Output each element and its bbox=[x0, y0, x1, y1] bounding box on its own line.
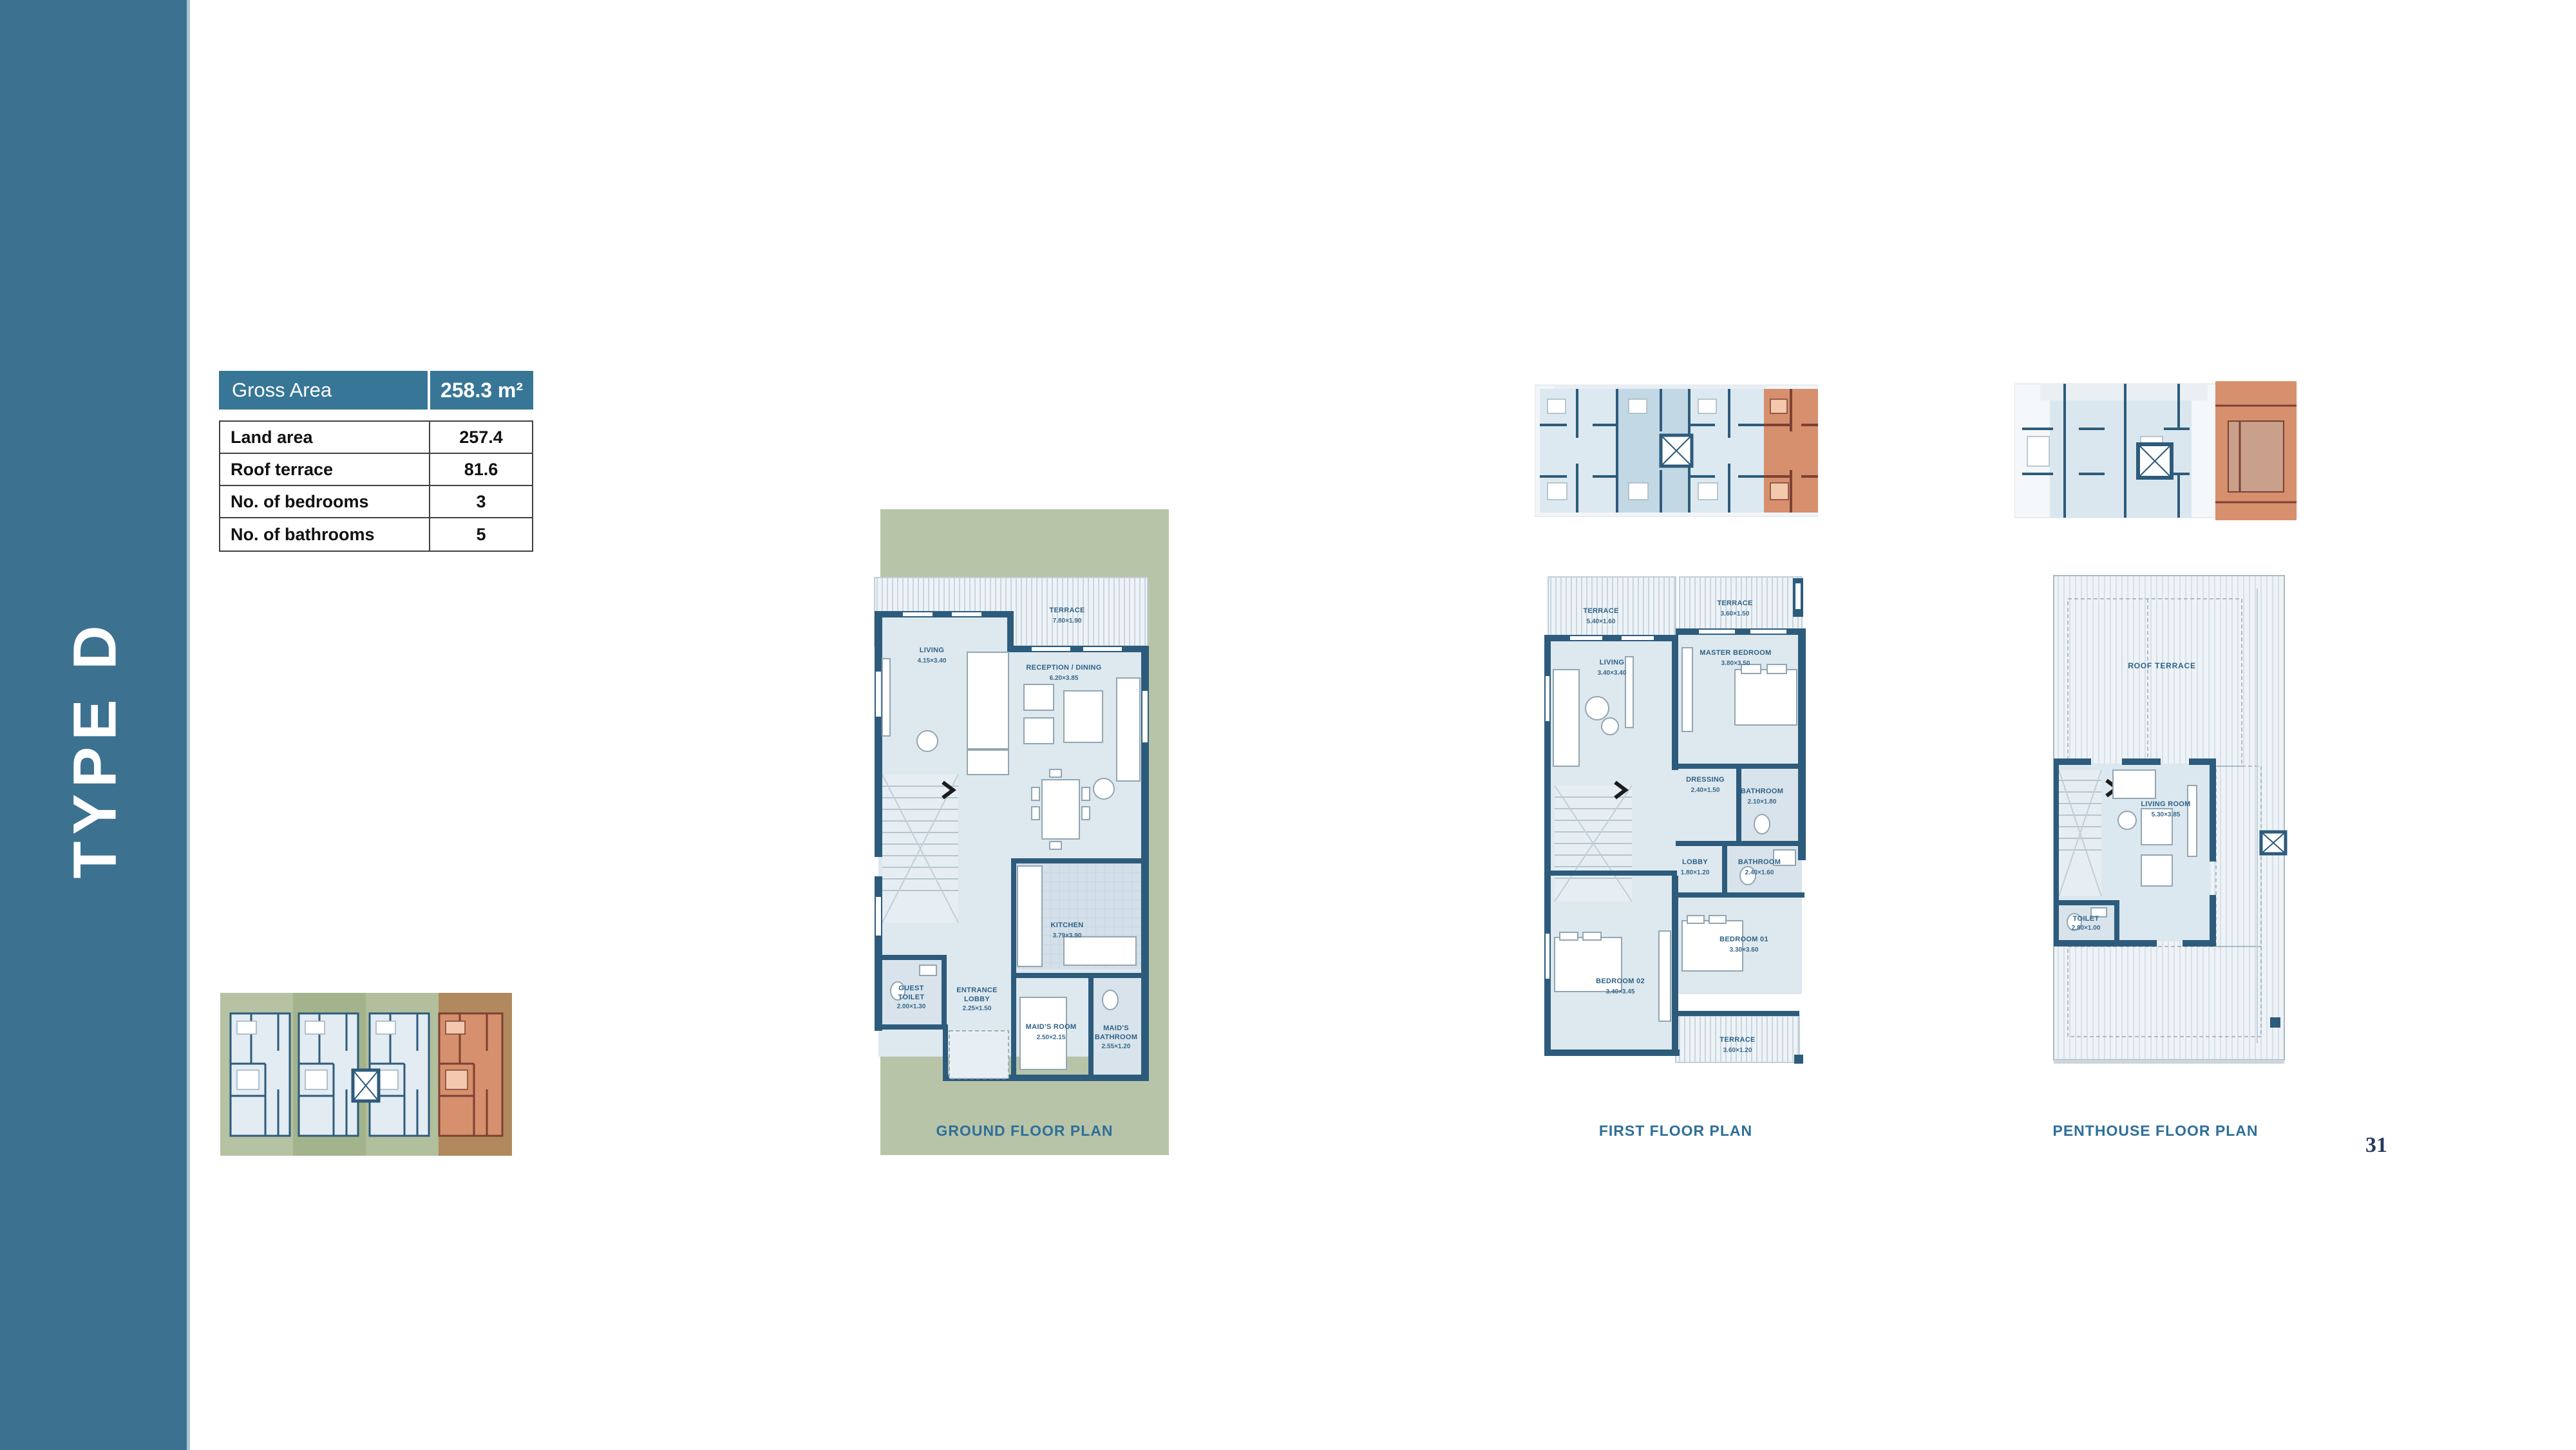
room-dim: 3.40×3.40 bbox=[1598, 670, 1627, 677]
room-dim: 2.25×1.50 bbox=[963, 1005, 992, 1012]
ground-floor-caption: GROUND FLOOR PLAN bbox=[936, 1122, 1113, 1140]
row-label: Roof terrace bbox=[220, 454, 430, 485]
room-label: LOBBY bbox=[964, 995, 990, 1003]
room-dim: 3.60×1.20 bbox=[1723, 1047, 1752, 1054]
row-value: 5 bbox=[430, 518, 532, 551]
room-label: BATHROOM bbox=[1741, 787, 1783, 795]
room-label: MASTER BEDROOM bbox=[1700, 649, 1771, 657]
room-label: ROOF TERRACE bbox=[2128, 661, 2196, 670]
sidebar-edge-line bbox=[187, 0, 190, 1450]
room-label: TERRACE bbox=[1719, 1036, 1755, 1044]
room-dim: 2.00×1.30 bbox=[897, 1003, 926, 1010]
room-label: TERRACE bbox=[1049, 607, 1084, 614]
room-label: BEDROOM 01 bbox=[1719, 936, 1768, 943]
room-label: DRESSING bbox=[1686, 776, 1725, 784]
room-dim: 1.80×1.20 bbox=[1681, 869, 1710, 876]
room-dim: 2.55×1.20 bbox=[1102, 1043, 1131, 1050]
room-label: LIVING ROOM bbox=[2141, 800, 2190, 808]
room-dim: 2.80×1.00 bbox=[2072, 925, 2101, 932]
room-label: BEDROOM 02 bbox=[1596, 977, 1645, 985]
key-plan-penthouse bbox=[2014, 380, 2298, 522]
room-label: GUEST bbox=[898, 984, 923, 992]
room-label: LIVING bbox=[920, 646, 944, 654]
table-row: Land area 257.4 bbox=[220, 422, 532, 454]
table-row: No. of bedrooms 3 bbox=[220, 486, 532, 518]
stairs bbox=[882, 775, 958, 923]
row-value: 257.4 bbox=[430, 422, 532, 453]
first-floor-plan: TERRACE 5.40×1.60 TERRACE 3.60×1.50 LIVI… bbox=[1544, 573, 1808, 1088]
room-dim: 5.30×3.85 bbox=[2152, 811, 2181, 818]
room-dim: 6.20×3.85 bbox=[1050, 675, 1079, 682]
room-label: BATHROOM bbox=[1095, 1033, 1137, 1041]
room-label: TOILET bbox=[2073, 915, 2099, 923]
room-label: LIVING bbox=[1600, 659, 1624, 666]
room-dim: 4.15×3.40 bbox=[918, 657, 947, 664]
room-dim: 3.30×3.60 bbox=[1730, 946, 1759, 954]
page-number: 31 bbox=[2351, 1133, 2402, 1158]
room-label: RECEPTION / DINING bbox=[1026, 664, 1101, 672]
brochure-page: TYPE D Gross Area 258.3 m² Land area 257… bbox=[0, 0, 2576, 1450]
stairs bbox=[1555, 782, 1632, 901]
area-table: Land area 257.4 Roof terrace 81.6 No. of… bbox=[219, 420, 533, 552]
room-dim: 3.40×3.45 bbox=[1606, 988, 1635, 995]
gross-area-value: 258.3 m² bbox=[430, 371, 533, 410]
room-label: BATHROOM bbox=[1738, 858, 1781, 866]
room-label: TERRACE bbox=[1717, 599, 1752, 607]
row-value: 81.6 bbox=[430, 454, 532, 485]
row-label: No. of bedrooms bbox=[220, 486, 430, 517]
first-floor-caption: FIRST FLOOR PLAN bbox=[1599, 1122, 1752, 1140]
room-label: ENTRANCE bbox=[956, 986, 998, 994]
room-label: MAID'S ROOM bbox=[1026, 1023, 1077, 1031]
row-value: 3 bbox=[430, 486, 532, 517]
room-dim: 7.80×1.90 bbox=[1053, 617, 1082, 625]
gross-area-label: Gross Area bbox=[219, 371, 430, 410]
table-row: Roof terrace 81.6 bbox=[220, 454, 532, 486]
room-label: TERRACE bbox=[1583, 607, 1618, 615]
penthouse-caption: PENTHOUSE FLOOR PLAN bbox=[2052, 1122, 2258, 1140]
room-label: KITCHEN bbox=[1051, 921, 1084, 929]
key-plan-first bbox=[1535, 380, 1818, 522]
room-dim: 3.80×3.50 bbox=[1721, 660, 1750, 667]
room-dim: 2.50×2.15 bbox=[1037, 1034, 1066, 1041]
row-label: No. of bathrooms bbox=[220, 518, 430, 551]
room-dim: 2.40×1.50 bbox=[1691, 787, 1720, 794]
ground-floor-plan: TERRACE 7.80×1.90 LIVING 4.15×3.40 RECEP… bbox=[871, 575, 1167, 1119]
room-label: LOBBY bbox=[1682, 858, 1708, 866]
room-label: MAID'S bbox=[1103, 1024, 1129, 1032]
room-dim: 3.79×3.90 bbox=[1053, 932, 1082, 939]
room-label: TOILET bbox=[898, 993, 925, 1001]
key-plan-ground bbox=[220, 993, 512, 1156]
room-dim: 5.40×1.60 bbox=[1587, 618, 1616, 625]
room-dim: 2.10×1.80 bbox=[1748, 798, 1777, 805]
row-label: Land area bbox=[220, 422, 430, 453]
room-dim: 3.60×1.50 bbox=[1721, 610, 1750, 617]
room-dim: 2.40×1.60 bbox=[1745, 869, 1774, 876]
page-title: TYPE D bbox=[61, 619, 131, 878]
table-row: No. of bathrooms 5 bbox=[220, 518, 532, 551]
gross-area-header: Gross Area 258.3 m² bbox=[219, 371, 533, 410]
penthouse-floor-plan: ROOF TERRACE LIVING ROOM 5.30×3.85 TOILE… bbox=[2051, 573, 2289, 1088]
